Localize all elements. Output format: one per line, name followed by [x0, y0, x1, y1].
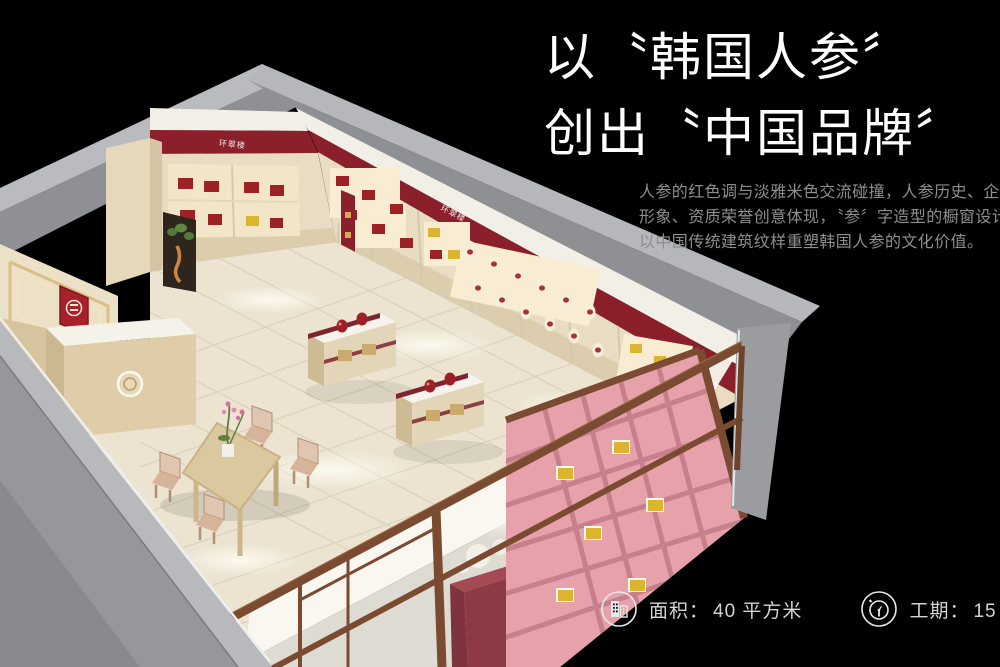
intro-line-3: 以中国传统建筑纹样重塑韩国人参的文化价值。 — [639, 230, 1000, 255]
stat-duration-label: 工期： — [909, 601, 969, 622]
headline: 以〝韩国人参〞 创出〝中国品牌〞 — [544, 20, 968, 172]
intro-line-2: 形象、资质荣誉创意体现，〝参〞字造型的橱窗设计， — [639, 205, 1000, 230]
stat-area-value: 40 平方米 — [713, 601, 802, 622]
buildings-icon — [600, 590, 638, 628]
project-stats: 面积：40 平方米 工期：15 天 — [600, 590, 1000, 628]
intro-paragraph: 人参的红色调与淡雅米色交流碰撞，人参历史、企业 形象、资质荣誉创意体现，〝参〞字… — [639, 180, 1000, 255]
stat-area-label: 面积： — [649, 601, 709, 622]
stat-duration-value: 15 天 — [973, 601, 1000, 622]
intro-line-1: 人参的红色调与淡雅米色交流碰撞，人参历史、企业 — [639, 180, 1000, 205]
headline-line-2: 创出〝中国品牌〞 — [544, 96, 968, 172]
wall-partition — [106, 138, 150, 286]
stopwatch-icon — [860, 590, 898, 628]
headline-line-1: 以〝韩国人参〞 — [544, 20, 968, 96]
ginseng-lightbox — [163, 212, 196, 292]
desk-medallion — [118, 372, 142, 396]
stat-duration: 工期：15 天 — [860, 590, 1000, 628]
stat-area: 面积：40 平方米 — [600, 590, 802, 628]
poster-canvas: 环翠楼 环翠楼 — [0, 0, 1000, 667]
